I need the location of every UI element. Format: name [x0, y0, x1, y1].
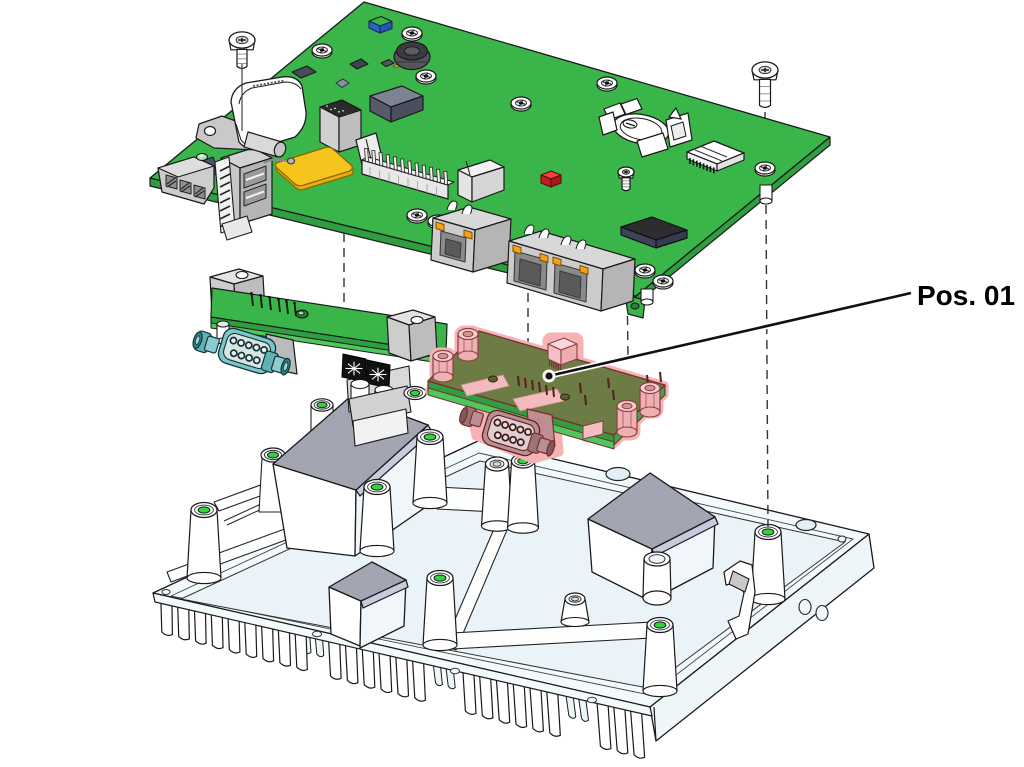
svg-text:Pos. 01: Pos. 01	[917, 280, 1015, 311]
